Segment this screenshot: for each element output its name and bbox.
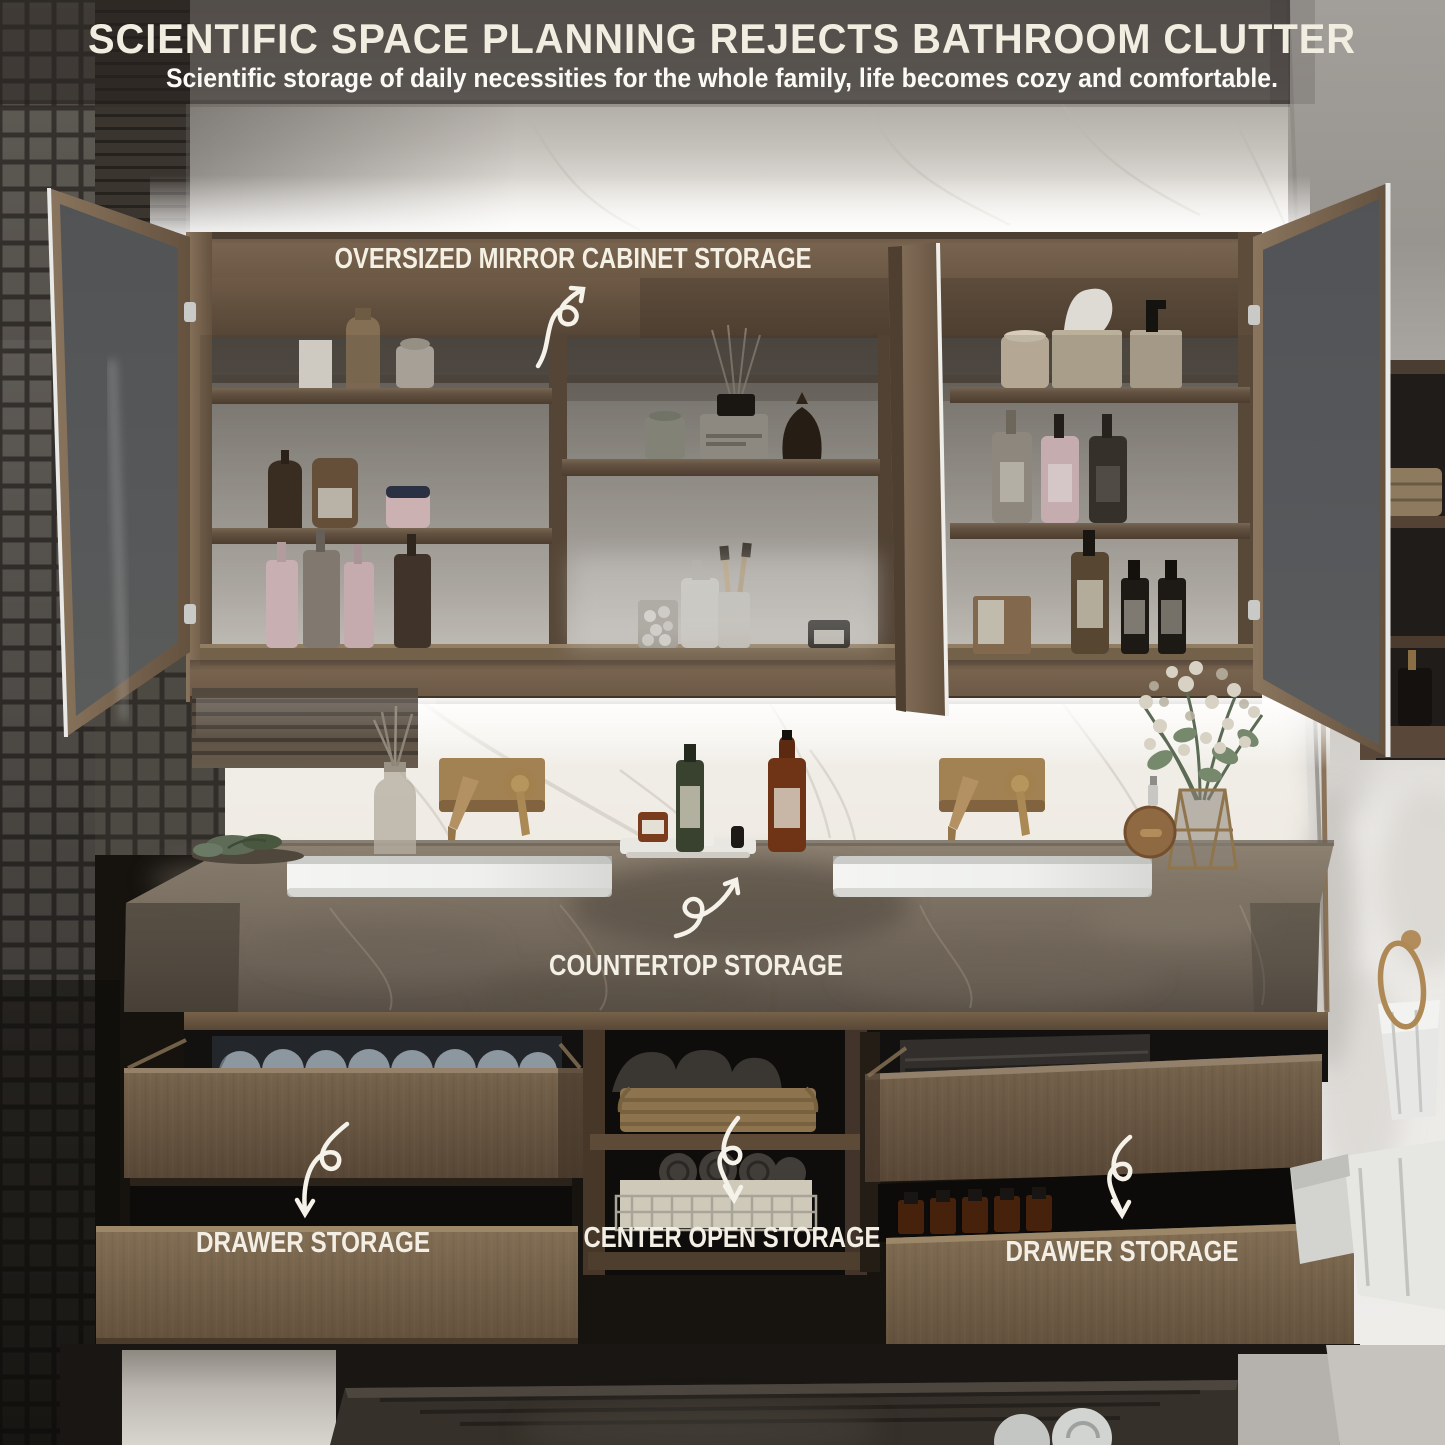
svg-text:COUNTERTOP STORAGE: COUNTERTOP STORAGE <box>549 950 843 982</box>
svg-text:DRAWER STORAGE: DRAWER STORAGE <box>196 1227 430 1259</box>
svg-text:Scientific storage of daily ne: Scientific storage of daily necessities … <box>166 63 1278 93</box>
svg-text:CENTER OPEN STORAGE: CENTER OPEN STORAGE <box>584 1222 881 1254</box>
svg-text:SCIENTIFIC SPACE PLANNING REJE: SCIENTIFIC SPACE PLANNING REJECTS BATHRO… <box>88 15 1356 62</box>
svg-text:DRAWER STORAGE: DRAWER STORAGE <box>1006 1236 1239 1268</box>
svg-text:OVERSIZED MIRROR CABINET STORA: OVERSIZED MIRROR CABINET STORAGE <box>335 243 812 275</box>
